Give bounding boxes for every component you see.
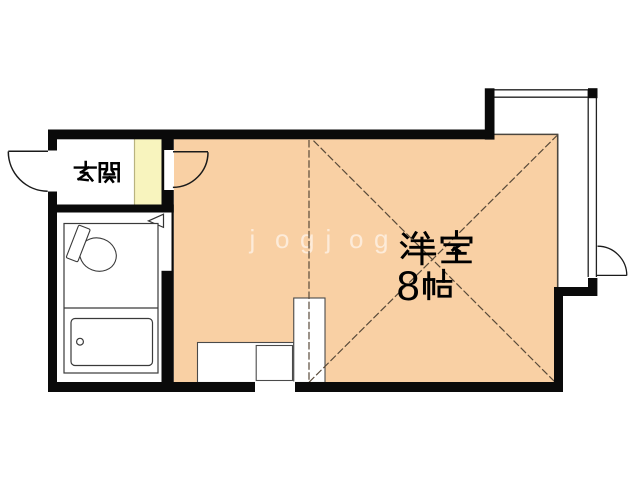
svg-text:o: o bbox=[275, 224, 289, 254]
svg-text:o: o bbox=[349, 224, 363, 254]
svg-text:j: j bbox=[249, 224, 256, 254]
svg-text:g: g bbox=[300, 224, 314, 254]
svg-text:8: 8 bbox=[397, 262, 420, 309]
svg-text:g: g bbox=[374, 224, 388, 254]
svg-text:j: j bbox=[325, 224, 332, 254]
